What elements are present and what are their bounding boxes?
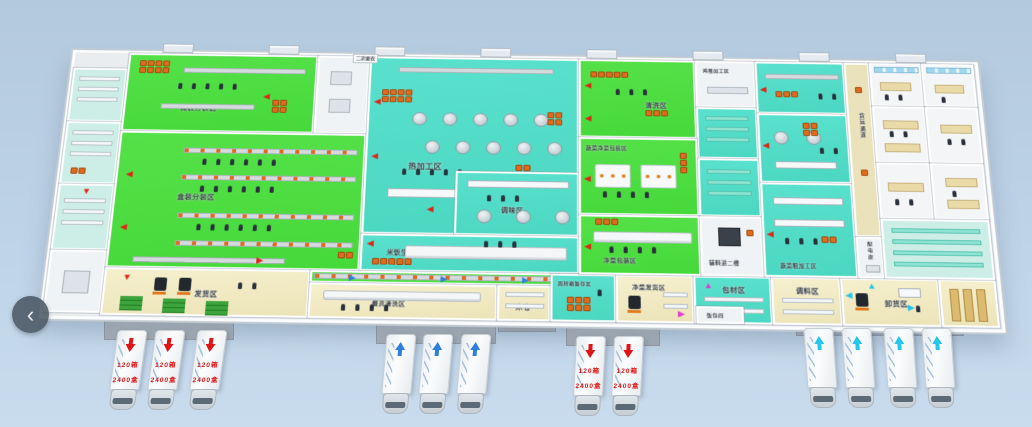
w-marker [402, 168, 462, 175]
flow-arrow-icon: ▼ [122, 273, 132, 282]
ml-marker [323, 290, 481, 302]
bx-marker [467, 180, 569, 189]
truck-capacity-label: 120箱 [151, 359, 180, 369]
arrow-stem [817, 344, 821, 350]
rks-marker [705, 116, 750, 148]
truck-cab [847, 387, 874, 408]
truck-cargo-box [883, 328, 917, 388]
room-meal-pack-room: 饭包间 [696, 306, 744, 324]
room-rice-production: 米饭生产区◀ [359, 234, 579, 275]
cr-marker [595, 218, 618, 225]
flow-arrow-icon: ◀ [371, 152, 378, 160]
flow-arrow-icon: ◀ [374, 98, 381, 106]
w-marker [947, 139, 965, 145]
truck-cargo-box [456, 334, 491, 394]
flow-arrow-icon: ◀ [584, 175, 591, 183]
bx-marker [773, 197, 844, 205]
rks-marker [782, 298, 835, 322]
factory-floorplan-scene: ▼桶装分装区◀盒装分装区◀◀▶发货区▼热加工区◀◀◀调味区米饭生产区◀▶▶▶餐具… [0, 0, 1032, 427]
arrow-head [585, 350, 595, 358]
truck-capacity-label: 2400盒 [149, 374, 178, 384]
flow-arrow-icon: ◀ [584, 242, 591, 250]
w-marker [202, 159, 276, 166]
ml-marker [405, 245, 567, 260]
room-inner-room [313, 56, 370, 134]
zone-label: 包材区 [722, 286, 745, 296]
truck-capacity-label: 2400盒 [191, 374, 220, 384]
rks-marker [891, 228, 984, 274]
zone-label: 净菜包装区 [603, 256, 636, 265]
room-unloading: 卸货区▶▲◀ [840, 278, 942, 327]
room-box-pack: 盒装分装区◀◀▶ [105, 131, 366, 271]
cr-marker [680, 153, 688, 174]
room-pallet-room [938, 279, 1000, 328]
w-marker [952, 191, 957, 197]
rks-marker [76, 76, 121, 108]
flow-arrow-icon: ◀ [760, 86, 767, 94]
cr-marker [382, 89, 413, 102]
arrow-stem [435, 350, 440, 356]
room-office-d [925, 107, 984, 164]
cr-marker [547, 112, 562, 125]
cr-marker [803, 123, 819, 136]
zone-label: 调料区 [796, 287, 820, 297]
arrow-stem [167, 338, 172, 344]
arrow-stem [626, 344, 630, 350]
arrow-head [932, 336, 943, 344]
zone-label: 辅料进二楼 [709, 259, 740, 267]
dsk-marker [947, 200, 980, 210]
flow-arrow-icon: ◀ [427, 205, 434, 213]
room-barrel-pack: 桶装分装区◀ [121, 53, 319, 133]
truck-cargo-box: 120箱2400盒 [573, 336, 606, 396]
delivery-truck: 120箱2400盒 [572, 336, 606, 416]
pal-marker [119, 296, 143, 311]
cr-marker [590, 71, 628, 77]
zone-label: 蔬菜净菜包装区 [586, 144, 628, 152]
room-office-b [921, 64, 978, 108]
dsk-marker [940, 125, 972, 134]
tb-marker [640, 165, 676, 189]
roof-vent [480, 48, 511, 58]
w-marker [487, 195, 519, 202]
bx-marker [775, 161, 837, 169]
room-plant-room [43, 250, 108, 313]
bx-marker [949, 289, 961, 322]
kt-marker [476, 209, 570, 224]
w-marker [341, 304, 389, 311]
dsk-marker [883, 120, 919, 129]
arrow-stem [209, 338, 214, 344]
zone-label: 鸡蛋加工区 [703, 68, 730, 74]
room-teal-room-b [698, 158, 762, 217]
roof-vent [162, 44, 194, 54]
truck-capacity-label: 2400盒 [111, 374, 140, 384]
flow-arrow-icon: ▲ [704, 281, 713, 290]
cr-marker [775, 91, 798, 97]
bx-marker [774, 219, 845, 227]
w-marker [616, 89, 647, 95]
conv-marker [160, 103, 254, 110]
zone-label: 饭包间 [707, 312, 724, 319]
flow-arrow-icon: ◀ [367, 239, 374, 247]
flow-arrow-icon: ◀ [263, 93, 270, 101]
zone-label: 清洗区 [645, 101, 667, 110]
flow-arrow-icon: ◀ [845, 291, 853, 300]
dk-marker [718, 227, 741, 246]
conv-marker [399, 67, 554, 74]
room-veg-pack-b: 净菜包装区◀ [579, 214, 701, 275]
dsk-marker [880, 82, 912, 91]
room-veg-rough: 蔬菜粗加工区◀ [760, 182, 858, 278]
delivery-truck [803, 328, 839, 408]
pal-marker [205, 301, 229, 316]
wall-sign: 二次更衣 [353, 54, 379, 64]
flow-arrow-icon: ▶ [349, 274, 357, 283]
kt-marker [412, 112, 549, 127]
zone-label: 蔬菜粗加工区 [780, 262, 817, 270]
truck-cargo-box [841, 328, 875, 388]
room-rice-store: 米仓 [497, 285, 551, 321]
roof-vent [586, 49, 617, 59]
flow-arrow-icon: ▶ [256, 256, 264, 265]
w-marker [895, 199, 914, 206]
truck-capacity-label: 120箱 [613, 365, 642, 375]
wn-marker [874, 67, 919, 74]
dsk-marker [888, 182, 925, 192]
flow-arrow-icon: ◀ [766, 230, 773, 238]
w-marker [603, 191, 649, 198]
room-power-room: 配电房 [856, 237, 885, 279]
arrow-head [163, 344, 174, 352]
truck-cargo-box [381, 334, 416, 394]
arrow-head [205, 344, 216, 352]
rks-marker [707, 169, 752, 202]
zone-label: 盒装分装区 [177, 192, 215, 202]
cr-marker [567, 297, 591, 312]
arrow-head [470, 342, 481, 350]
wn-marker [926, 67, 971, 74]
w-marker [196, 224, 271, 232]
dsk-marker [885, 143, 921, 152]
roof-vent [895, 53, 927, 63]
zone-label: 货运通道 [857, 113, 867, 139]
arrow-stem [129, 338, 134, 344]
w-marker [785, 238, 818, 245]
cr-marker [272, 100, 288, 113]
conv-marker [181, 174, 356, 182]
w-marker [178, 83, 237, 90]
truck-capacity-label: 120箱 [575, 365, 604, 375]
w-marker [484, 241, 516, 248]
room-teal-room-a [696, 107, 759, 159]
room-veg-shipping: 净菜发货区▶ [616, 275, 695, 324]
truck-cab [188, 389, 217, 410]
arrow-head [623, 350, 633, 358]
flow-arrow-icon: ▶ [440, 275, 447, 284]
bx-marker [61, 270, 90, 293]
conv-marker [177, 212, 354, 220]
w-marker [609, 246, 656, 253]
cr-marker [861, 170, 868, 176]
fork-marker [178, 278, 191, 291]
w-marker [598, 289, 602, 296]
carousel-prev-button[interactable]: ‹ [12, 296, 49, 333]
delivery-truck [841, 328, 877, 408]
arrow-head [432, 342, 443, 350]
zone-label: 发货区 [194, 289, 218, 299]
arrow-head [852, 336, 863, 344]
truck-cab [419, 393, 447, 414]
room-shipping: 发货区▼ [100, 267, 311, 318]
w-marker [941, 97, 945, 103]
bx-marker [976, 289, 988, 322]
roof-vent [692, 51, 723, 61]
cr-marker [821, 236, 837, 243]
cr-marker [645, 110, 668, 116]
truck-cab [382, 393, 410, 414]
flow-arrow-icon: ▶ [907, 303, 915, 312]
cr-marker [372, 258, 412, 265]
room-proc-a: ◀ [755, 62, 848, 115]
room-office-c [872, 106, 930, 163]
bx-marker [866, 265, 881, 273]
cr-marker [70, 167, 86, 173]
w-marker [238, 282, 257, 289]
flow-arrow-icon: ◀ [585, 82, 592, 90]
cr-marker [855, 87, 862, 93]
truck-cab [927, 387, 954, 408]
bx-marker [707, 87, 748, 94]
room-cold-long [880, 219, 995, 280]
truck-cab [889, 387, 916, 408]
cr-marker [338, 252, 354, 259]
conv-marker [765, 74, 839, 80]
flow-arrow-icon: ▼ [81, 187, 91, 195]
room-office-e [876, 163, 935, 220]
truck-cab [612, 395, 639, 416]
conv-marker [184, 68, 306, 75]
truck-cargo-box [803, 328, 837, 388]
truck-cab [457, 393, 485, 414]
zone-label: 卸货区 [885, 299, 909, 309]
bx-marker [962, 289, 974, 322]
truck-cab [809, 387, 836, 408]
pal-marker [162, 298, 186, 313]
roof-vent [268, 45, 299, 55]
room-aux-to-2f: 辅料进二楼 [700, 216, 765, 276]
flow-arrow-icon: ◀ [762, 141, 769, 149]
bx-marker [328, 99, 350, 113]
room-proc-b: ◀ [757, 113, 852, 183]
w-marker [916, 305, 921, 312]
truck-cab [574, 395, 601, 416]
room-condiment: 调料区 [771, 277, 843, 326]
cr-marker [139, 60, 170, 73]
arrow-stem [473, 350, 478, 356]
zone-label: 周转箱暂存区 [558, 280, 592, 287]
tb-marker [595, 164, 631, 188]
ml-marker [593, 231, 692, 244]
truck-capacity-label: 2400盒 [612, 380, 641, 390]
w-marker [818, 93, 836, 99]
zone-label: 净菜发货区 [632, 282, 665, 291]
arrow-head [894, 336, 905, 344]
room-dishwash: 餐具清洗区 [307, 282, 497, 320]
truck-capacity-label: 120箱 [193, 359, 222, 369]
arrow-stem [588, 344, 592, 350]
conv-marker [184, 148, 358, 156]
room-office-f [930, 163, 989, 220]
flow-arrow-icon: ◀ [125, 170, 133, 178]
delivery-truck [883, 328, 919, 408]
flow-arrow-icon: ▶ [522, 276, 529, 285]
room-washing: 清洗区◀◀ [579, 59, 697, 138]
delivery-truck: 120箱2400盒 [610, 336, 644, 416]
w-marker [890, 131, 908, 137]
room-veg-pack-a: 蔬菜净菜包装区◀ [579, 137, 700, 216]
rks-marker [505, 292, 544, 316]
arrow-head [814, 336, 825, 344]
truck-cargo-box: 120箱2400盒 [611, 336, 644, 396]
room-egg-processing: 鸡蛋加工区 [695, 61, 757, 108]
room-seasoning: 调味区 [454, 171, 579, 237]
cr-marker [746, 230, 753, 237]
arrow-stem [935, 344, 939, 350]
kt-marker [425, 140, 562, 155]
room-cold-b [59, 121, 122, 184]
arrow-stem [855, 344, 859, 350]
w-marker [885, 94, 903, 100]
arrow-head [395, 342, 406, 350]
arrow-stem [398, 350, 403, 356]
dsk-marker [945, 178, 978, 187]
w-marker [200, 185, 274, 192]
fork-marker [628, 296, 641, 310]
truck-cargo-box [418, 334, 453, 394]
rks-marker [69, 130, 114, 162]
truck-cargo-box [921, 328, 955, 388]
flow-arrow-icon: ▲ [867, 282, 877, 291]
flow-arrow-icon: ◀ [585, 114, 592, 122]
fork-marker [154, 277, 168, 290]
conv-marker [175, 240, 353, 248]
room-tote-staging: 周转箱暂存区 [550, 274, 616, 323]
truck-cab [146, 389, 175, 410]
zone-label: 配电房 [866, 242, 875, 262]
bx-marker [898, 288, 921, 298]
arrow-stem [897, 344, 901, 350]
delivery-truck [921, 328, 957, 408]
flow-arrow-icon: ◀ [120, 223, 128, 231]
bx-marker [330, 71, 352, 85]
factory-building-plan: ▼桶装分装区◀盒装分装区◀◀▶发货区▼热加工区◀◀◀调味区米饭生产区◀▶▶▶餐具… [39, 50, 1006, 333]
truck-capacity-label: 2400盒 [574, 380, 603, 390]
truck-capacity-label: 120箱 [113, 359, 142, 369]
arrow-head [125, 344, 136, 352]
fork-marker [855, 293, 868, 307]
roof-vent [798, 52, 829, 62]
flow-arrow-icon: ▶ [678, 310, 685, 319]
room-office-a [869, 63, 925, 107]
dsk-marker [934, 85, 964, 94]
room-cold-a [67, 68, 128, 122]
truck-cab [108, 389, 137, 410]
room-cold-c: ▼ [51, 183, 115, 250]
w-marker [820, 148, 838, 154]
rks-marker [60, 198, 106, 232]
roof-vent [374, 46, 405, 56]
